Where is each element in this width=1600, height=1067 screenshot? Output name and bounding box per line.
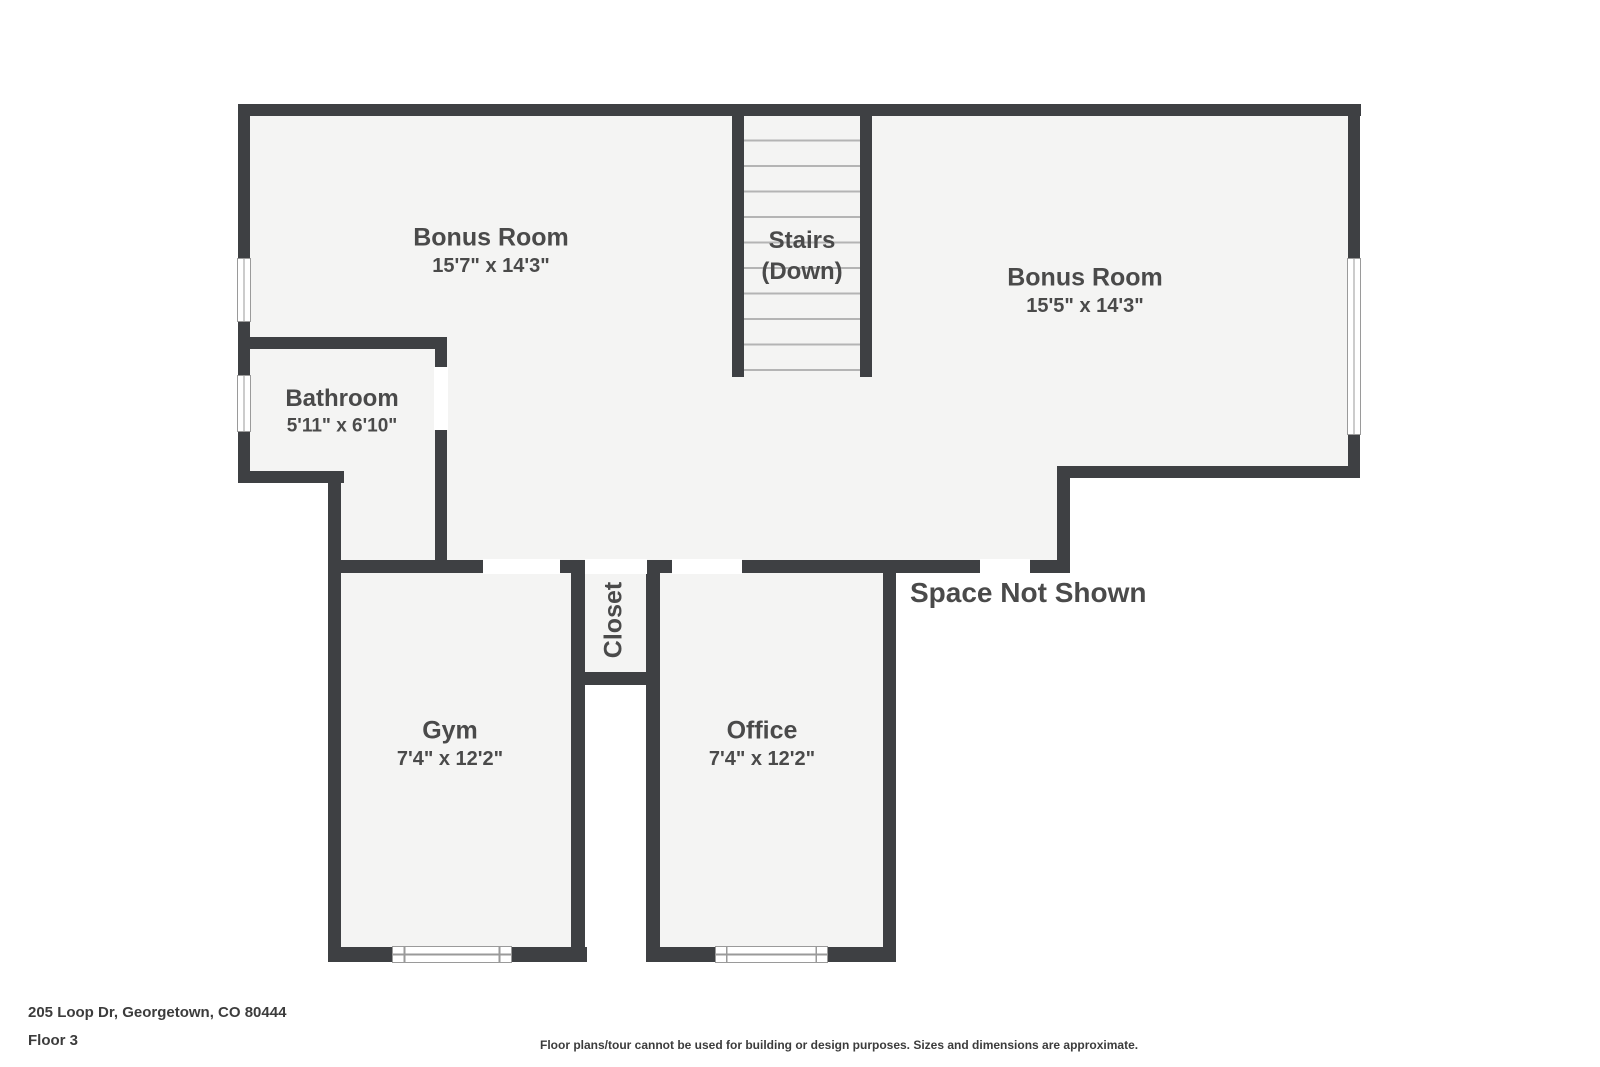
wall-bonus-right-bottom <box>1057 466 1360 478</box>
window-bonus-right-wall <box>1347 258 1361 435</box>
bonus-room-right-dims: 15'5" x 14'3" <box>1026 296 1143 316</box>
stairs-label: Stairs <box>769 229 836 253</box>
window-office-bottom <box>715 946 828 963</box>
wall-stairs-left <box>732 104 744 377</box>
wall-gym-left <box>328 471 341 962</box>
window-bonus-left-wall <box>237 258 251 322</box>
footer-address: 205 Loop Dr, Georgetown, CO 80444 <box>28 1004 286 1021</box>
bonus-room-left-label: Bonus Room <box>413 226 569 251</box>
stairs-direction-label: (Down) <box>761 260 842 284</box>
wall-hall-right-vertical <box>1057 466 1070 573</box>
floor-hall-lower <box>341 471 1057 560</box>
space-not-shown-label: Space Not Shown <box>910 577 1146 609</box>
wall-gym-closet-divider <box>571 560 585 962</box>
door-gym <box>483 559 560 574</box>
bonus-room-left-dims: 15'7" x 14'3" <box>432 256 549 276</box>
wall-closet-office-divider <box>646 560 660 962</box>
wall-stairs-right <box>860 104 872 377</box>
floor-plan-page: Bonus Room 15'7" x 14'3" Stairs (Down) B… <box>0 0 1600 1067</box>
office-dims: 7'4" x 12'2" <box>709 749 815 769</box>
office-label: Office <box>727 719 798 744</box>
window-bathroom-left-wall <box>237 375 251 432</box>
wall-closet-bottom <box>571 672 660 685</box>
door-bathroom <box>434 367 448 430</box>
door-closet <box>585 559 647 574</box>
footer-floor-label: Floor 3 <box>28 1032 78 1049</box>
bonus-room-right-label: Bonus Room <box>1007 266 1163 291</box>
window-gym-bottom <box>392 946 512 963</box>
bathroom-dims: 5'11" x 6'10" <box>287 417 398 436</box>
door-office <box>672 559 742 574</box>
wall-office-right <box>883 560 896 962</box>
gym-label: Gym <box>422 719 478 744</box>
door-hall-to-space <box>980 559 1030 574</box>
gym-dims: 7'4" x 12'2" <box>397 749 503 769</box>
bathroom-label: Bathroom <box>285 387 398 411</box>
wall-bathroom-top <box>238 337 447 349</box>
wall-outer-top <box>238 104 1361 116</box>
closet-label: Closet <box>602 582 627 658</box>
footer-disclaimer: Floor plans/tour cannot be used for buil… <box>540 1038 1138 1052</box>
